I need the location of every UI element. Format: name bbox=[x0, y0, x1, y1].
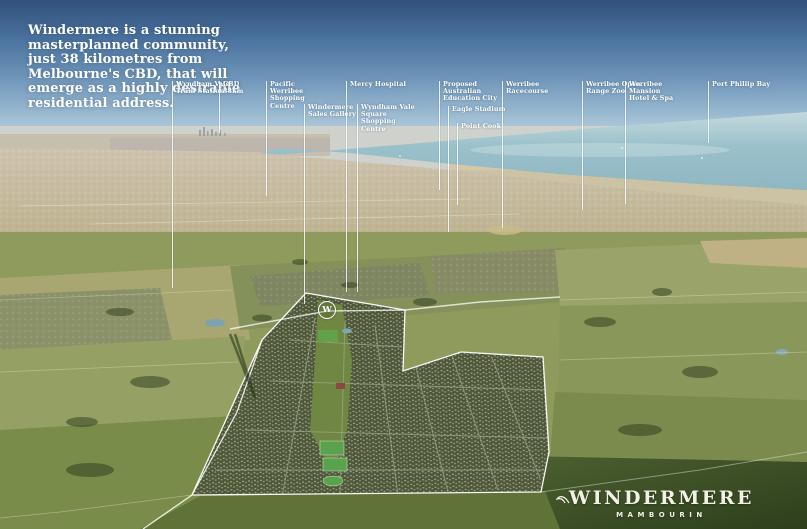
leader-line bbox=[625, 81, 626, 204]
headline: Windermere is a stunning masterplanned c… bbox=[28, 24, 278, 112]
leader-line bbox=[439, 81, 440, 190]
leader-line bbox=[357, 104, 358, 292]
leader-line bbox=[304, 104, 305, 304]
leader-line bbox=[346, 81, 347, 292]
leader-line bbox=[219, 81, 220, 133]
leader-line bbox=[582, 81, 583, 210]
leader-line bbox=[708, 81, 709, 143]
leader-line bbox=[172, 81, 173, 288]
logo-location: MAMBOURIN bbox=[569, 511, 754, 519]
leader-line bbox=[448, 106, 449, 232]
leader-line bbox=[502, 81, 503, 228]
aerial-masterplan-advert: Windermere is a stunning masterplanned c… bbox=[0, 0, 807, 529]
logo: WINDERMERE MAMBOURIN bbox=[569, 489, 754, 519]
leader-line bbox=[457, 123, 458, 205]
logo-wing-icon bbox=[556, 494, 570, 506]
leader-line bbox=[266, 81, 267, 196]
site-marker: W bbox=[318, 301, 336, 319]
site-marker-letter: W bbox=[322, 305, 332, 315]
logo-wordmark: WINDERMERE bbox=[569, 489, 754, 508]
